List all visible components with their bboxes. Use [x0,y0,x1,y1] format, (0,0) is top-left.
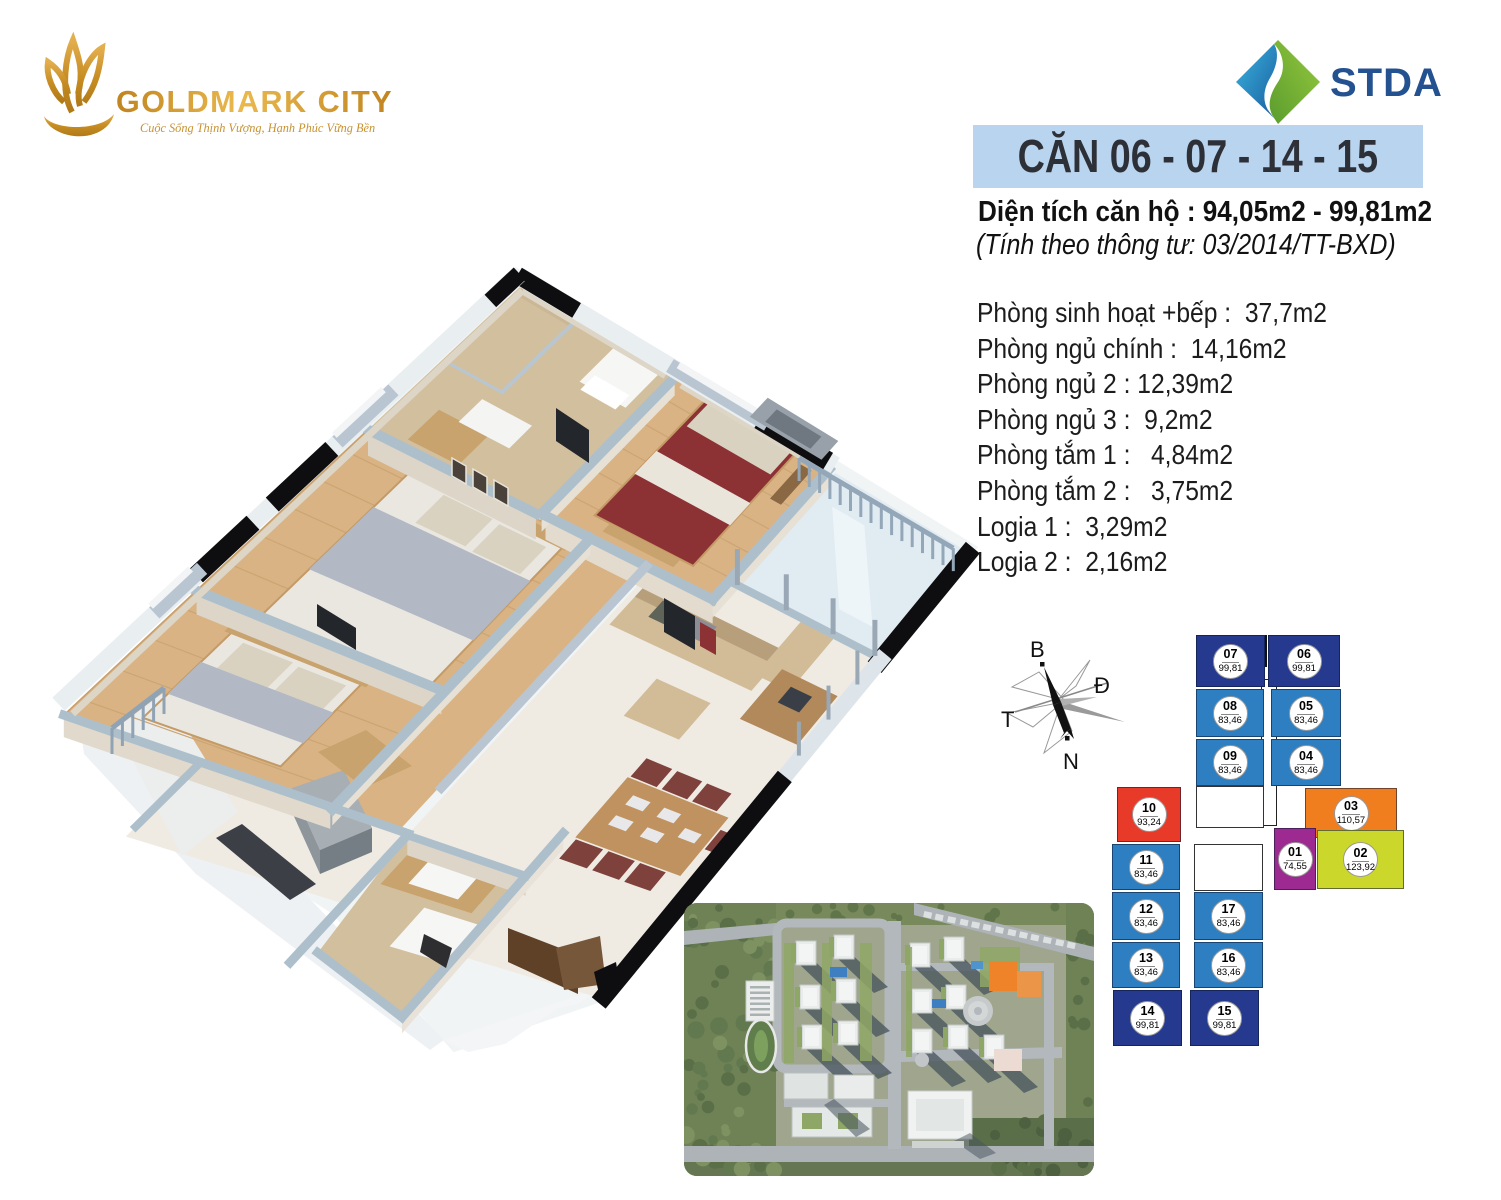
svg-text:B: B [1030,637,1045,662]
svg-text:N: N [1063,749,1079,774]
svg-text:T: T [1001,707,1014,732]
svg-text:GOLDMARK CITY: GOLDMARK CITY [116,85,393,119]
svg-text:Cuộc Sống Thịnh Vượng, Hạnh Ph: Cuộc Sống Thịnh Vượng, Hạnh Phúc Vững Bề… [140,121,375,135]
svg-text:STDA: STDA [1330,61,1443,105]
svg-text:Đ: Đ [1094,673,1110,698]
